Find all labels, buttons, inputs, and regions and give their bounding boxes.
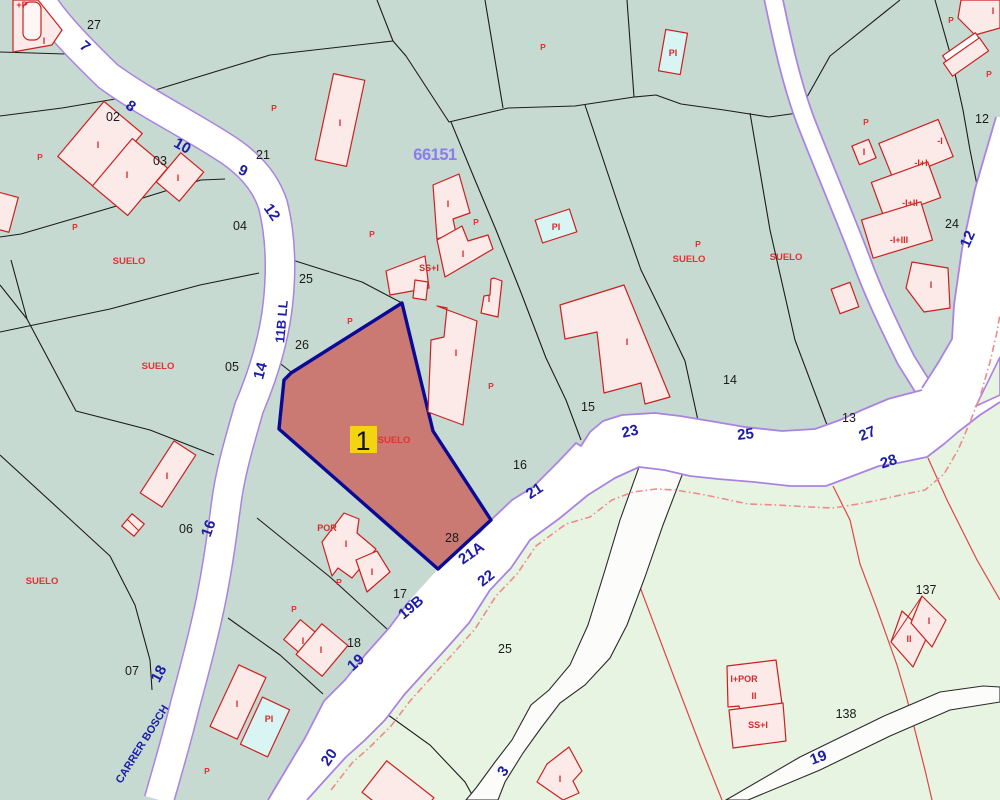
svg-text:P: P bbox=[863, 117, 869, 127]
svg-text:SUELO: SUELO bbox=[26, 576, 59, 587]
svg-text:POR: POR bbox=[317, 523, 337, 533]
svg-text:P: P bbox=[336, 577, 342, 587]
svg-text:I: I bbox=[371, 567, 374, 577]
svg-text:I: I bbox=[992, 6, 995, 16]
svg-text:23: 23 bbox=[620, 422, 640, 442]
svg-text:14: 14 bbox=[723, 373, 737, 387]
svg-text:I: I bbox=[339, 118, 342, 128]
svg-text:II: II bbox=[751, 691, 756, 701]
svg-text:P: P bbox=[695, 239, 701, 249]
svg-text:P: P bbox=[72, 222, 78, 232]
svg-text:P: P bbox=[291, 604, 297, 614]
svg-text:P: P bbox=[488, 381, 494, 391]
svg-text:I: I bbox=[626, 337, 629, 347]
svg-text:SS+I: SS+I bbox=[748, 720, 768, 730]
svg-text:26: 26 bbox=[295, 338, 309, 352]
svg-text:I+POR: I+POR bbox=[730, 674, 758, 684]
svg-text:SUELO: SUELO bbox=[770, 252, 803, 263]
svg-text:P: P bbox=[204, 766, 210, 776]
svg-text:P: P bbox=[37, 152, 43, 162]
svg-text:28: 28 bbox=[445, 531, 459, 545]
svg-text:I: I bbox=[455, 348, 458, 358]
svg-text:P: P bbox=[369, 229, 375, 239]
svg-text:PI: PI bbox=[265, 714, 274, 724]
svg-text:P: P bbox=[948, 15, 954, 25]
svg-text:SUELO: SUELO bbox=[113, 256, 146, 267]
svg-text:I: I bbox=[462, 249, 465, 259]
svg-text:-I: -I bbox=[937, 136, 943, 146]
svg-text:-I+I: -I+I bbox=[914, 158, 927, 168]
svg-text:12: 12 bbox=[975, 112, 989, 126]
svg-text:I: I bbox=[930, 280, 933, 290]
svg-text:I: I bbox=[345, 539, 348, 549]
svg-text:I: I bbox=[447, 199, 450, 209]
svg-text:P: P bbox=[473, 217, 479, 227]
svg-text:-I+III: -I+III bbox=[890, 235, 908, 245]
svg-text:25: 25 bbox=[299, 272, 313, 286]
svg-text:SS+I: SS+I bbox=[419, 263, 439, 273]
svg-text:18: 18 bbox=[347, 636, 361, 650]
svg-text:137: 137 bbox=[916, 583, 937, 597]
svg-text:66151: 66151 bbox=[413, 146, 457, 164]
svg-text:07: 07 bbox=[125, 664, 139, 678]
svg-text:25: 25 bbox=[736, 425, 754, 444]
svg-text:PI: PI bbox=[669, 48, 678, 58]
svg-text:PI: PI bbox=[552, 222, 561, 232]
svg-text:P: P bbox=[347, 316, 353, 326]
svg-text:I: I bbox=[302, 636, 305, 646]
svg-text:I: I bbox=[559, 774, 562, 784]
svg-text:I: I bbox=[166, 471, 169, 481]
svg-text:21: 21 bbox=[256, 148, 270, 162]
svg-text:13: 13 bbox=[842, 411, 856, 425]
svg-text:-I+II: -I+II bbox=[902, 198, 918, 208]
svg-text:SUELO: SUELO bbox=[378, 435, 411, 446]
svg-text:II: II bbox=[906, 634, 911, 644]
svg-text:27: 27 bbox=[87, 18, 101, 32]
svg-text:24: 24 bbox=[945, 217, 959, 231]
svg-text:I: I bbox=[97, 140, 100, 150]
svg-text:SUELO: SUELO bbox=[673, 254, 706, 265]
svg-text:I: I bbox=[320, 645, 323, 655]
svg-text:138: 138 bbox=[836, 707, 857, 721]
svg-text:P: P bbox=[986, 69, 992, 79]
svg-text:I: I bbox=[236, 699, 239, 709]
svg-text:P: P bbox=[271, 103, 277, 113]
svg-text:I: I bbox=[488, 294, 491, 304]
svg-text:04: 04 bbox=[233, 219, 247, 233]
svg-text:I: I bbox=[863, 147, 866, 157]
svg-text:I: I bbox=[177, 173, 180, 183]
svg-text:02: 02 bbox=[106, 110, 120, 124]
svg-text:1: 1 bbox=[355, 426, 370, 456]
svg-text:05: 05 bbox=[225, 360, 239, 374]
svg-text:I: I bbox=[126, 170, 129, 180]
svg-text:P: P bbox=[540, 42, 546, 52]
svg-text:I: I bbox=[43, 36, 46, 46]
svg-text:17: 17 bbox=[393, 587, 407, 601]
svg-text:+P: +P bbox=[16, 0, 27, 10]
svg-text:I: I bbox=[928, 616, 931, 626]
svg-text:SUELO: SUELO bbox=[142, 361, 175, 372]
svg-text:16: 16 bbox=[513, 458, 527, 472]
svg-text:25: 25 bbox=[498, 642, 512, 656]
svg-text:15: 15 bbox=[581, 400, 595, 414]
svg-text:06: 06 bbox=[179, 522, 193, 536]
svg-text:03: 03 bbox=[153, 154, 167, 168]
